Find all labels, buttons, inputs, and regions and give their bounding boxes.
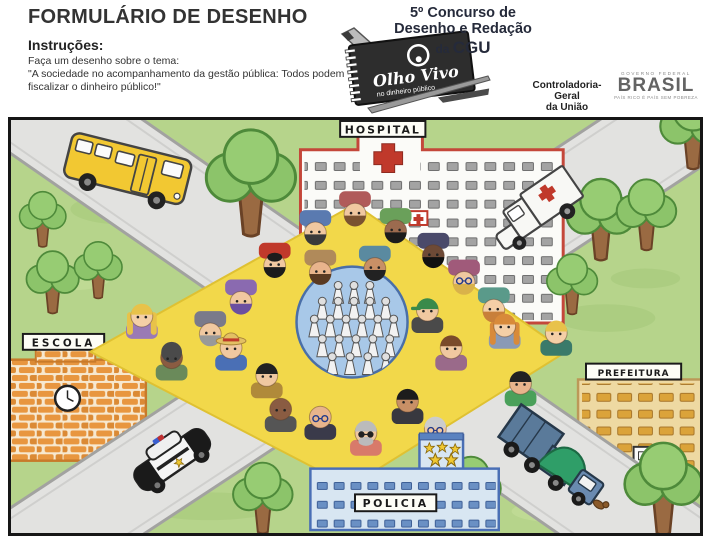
contest-line3-prefix: da <box>435 42 452 56</box>
contest-line1: 5º Concurso de <box>382 5 544 21</box>
hospital-sign-label: HOSPITAL <box>345 123 421 136</box>
drawing-svg: ESCOLA PREFEITURA <box>11 120 700 533</box>
instructions-line: Faça um desenho sobre o tema: <box>28 55 358 68</box>
page-title: FORMULÁRIO DE DESENHO <box>28 6 358 29</box>
contest-title: 5º Concurso de Desenho e Redação da CGU <box>382 5 544 58</box>
agency-line1: Controladoria-Geral <box>524 80 610 102</box>
instructions-line: "A sociedade no acompanhamento da gestão… <box>28 68 358 81</box>
gov-brand: GOVERNO FEDERAL BRASIL PAÍS RICO É PAÍS … <box>611 71 701 100</box>
gov-tagline-label: PAÍS RICO É PAÍS SEM POBREZA <box>611 95 701 100</box>
cityhall-sign-label: PREFEITURA <box>598 369 670 379</box>
scanned-form-page: FORMULÁRIO DE DESENHO Instruções: Faça u… <box>0 0 711 544</box>
contest-line3: da CGU <box>382 38 544 58</box>
form-header: FORMULÁRIO DE DESENHO Instruções: Faça u… <box>28 6 358 94</box>
gov-name-label: BRASIL <box>611 76 701 95</box>
agency-name: Controladoria-Geral da União <box>524 80 610 113</box>
instructions-line: fiscalizar o dinheiro público!" <box>28 81 358 94</box>
police-sign-label: POLICIA <box>363 497 429 510</box>
contest-logo-block: Olho Vivo no dinheiro público 5º Concurs… <box>338 0 546 114</box>
instructions-label: Instruções: <box>28 37 358 53</box>
school-sign-label: ESCOLA <box>32 337 96 349</box>
drawing-area: ESCOLA PREFEITURA <box>8 117 703 536</box>
contest-line2: Desenho e Redação <box>382 21 544 37</box>
contest-line3-name: CGU <box>453 38 491 57</box>
agency-line2: da União <box>524 102 610 113</box>
